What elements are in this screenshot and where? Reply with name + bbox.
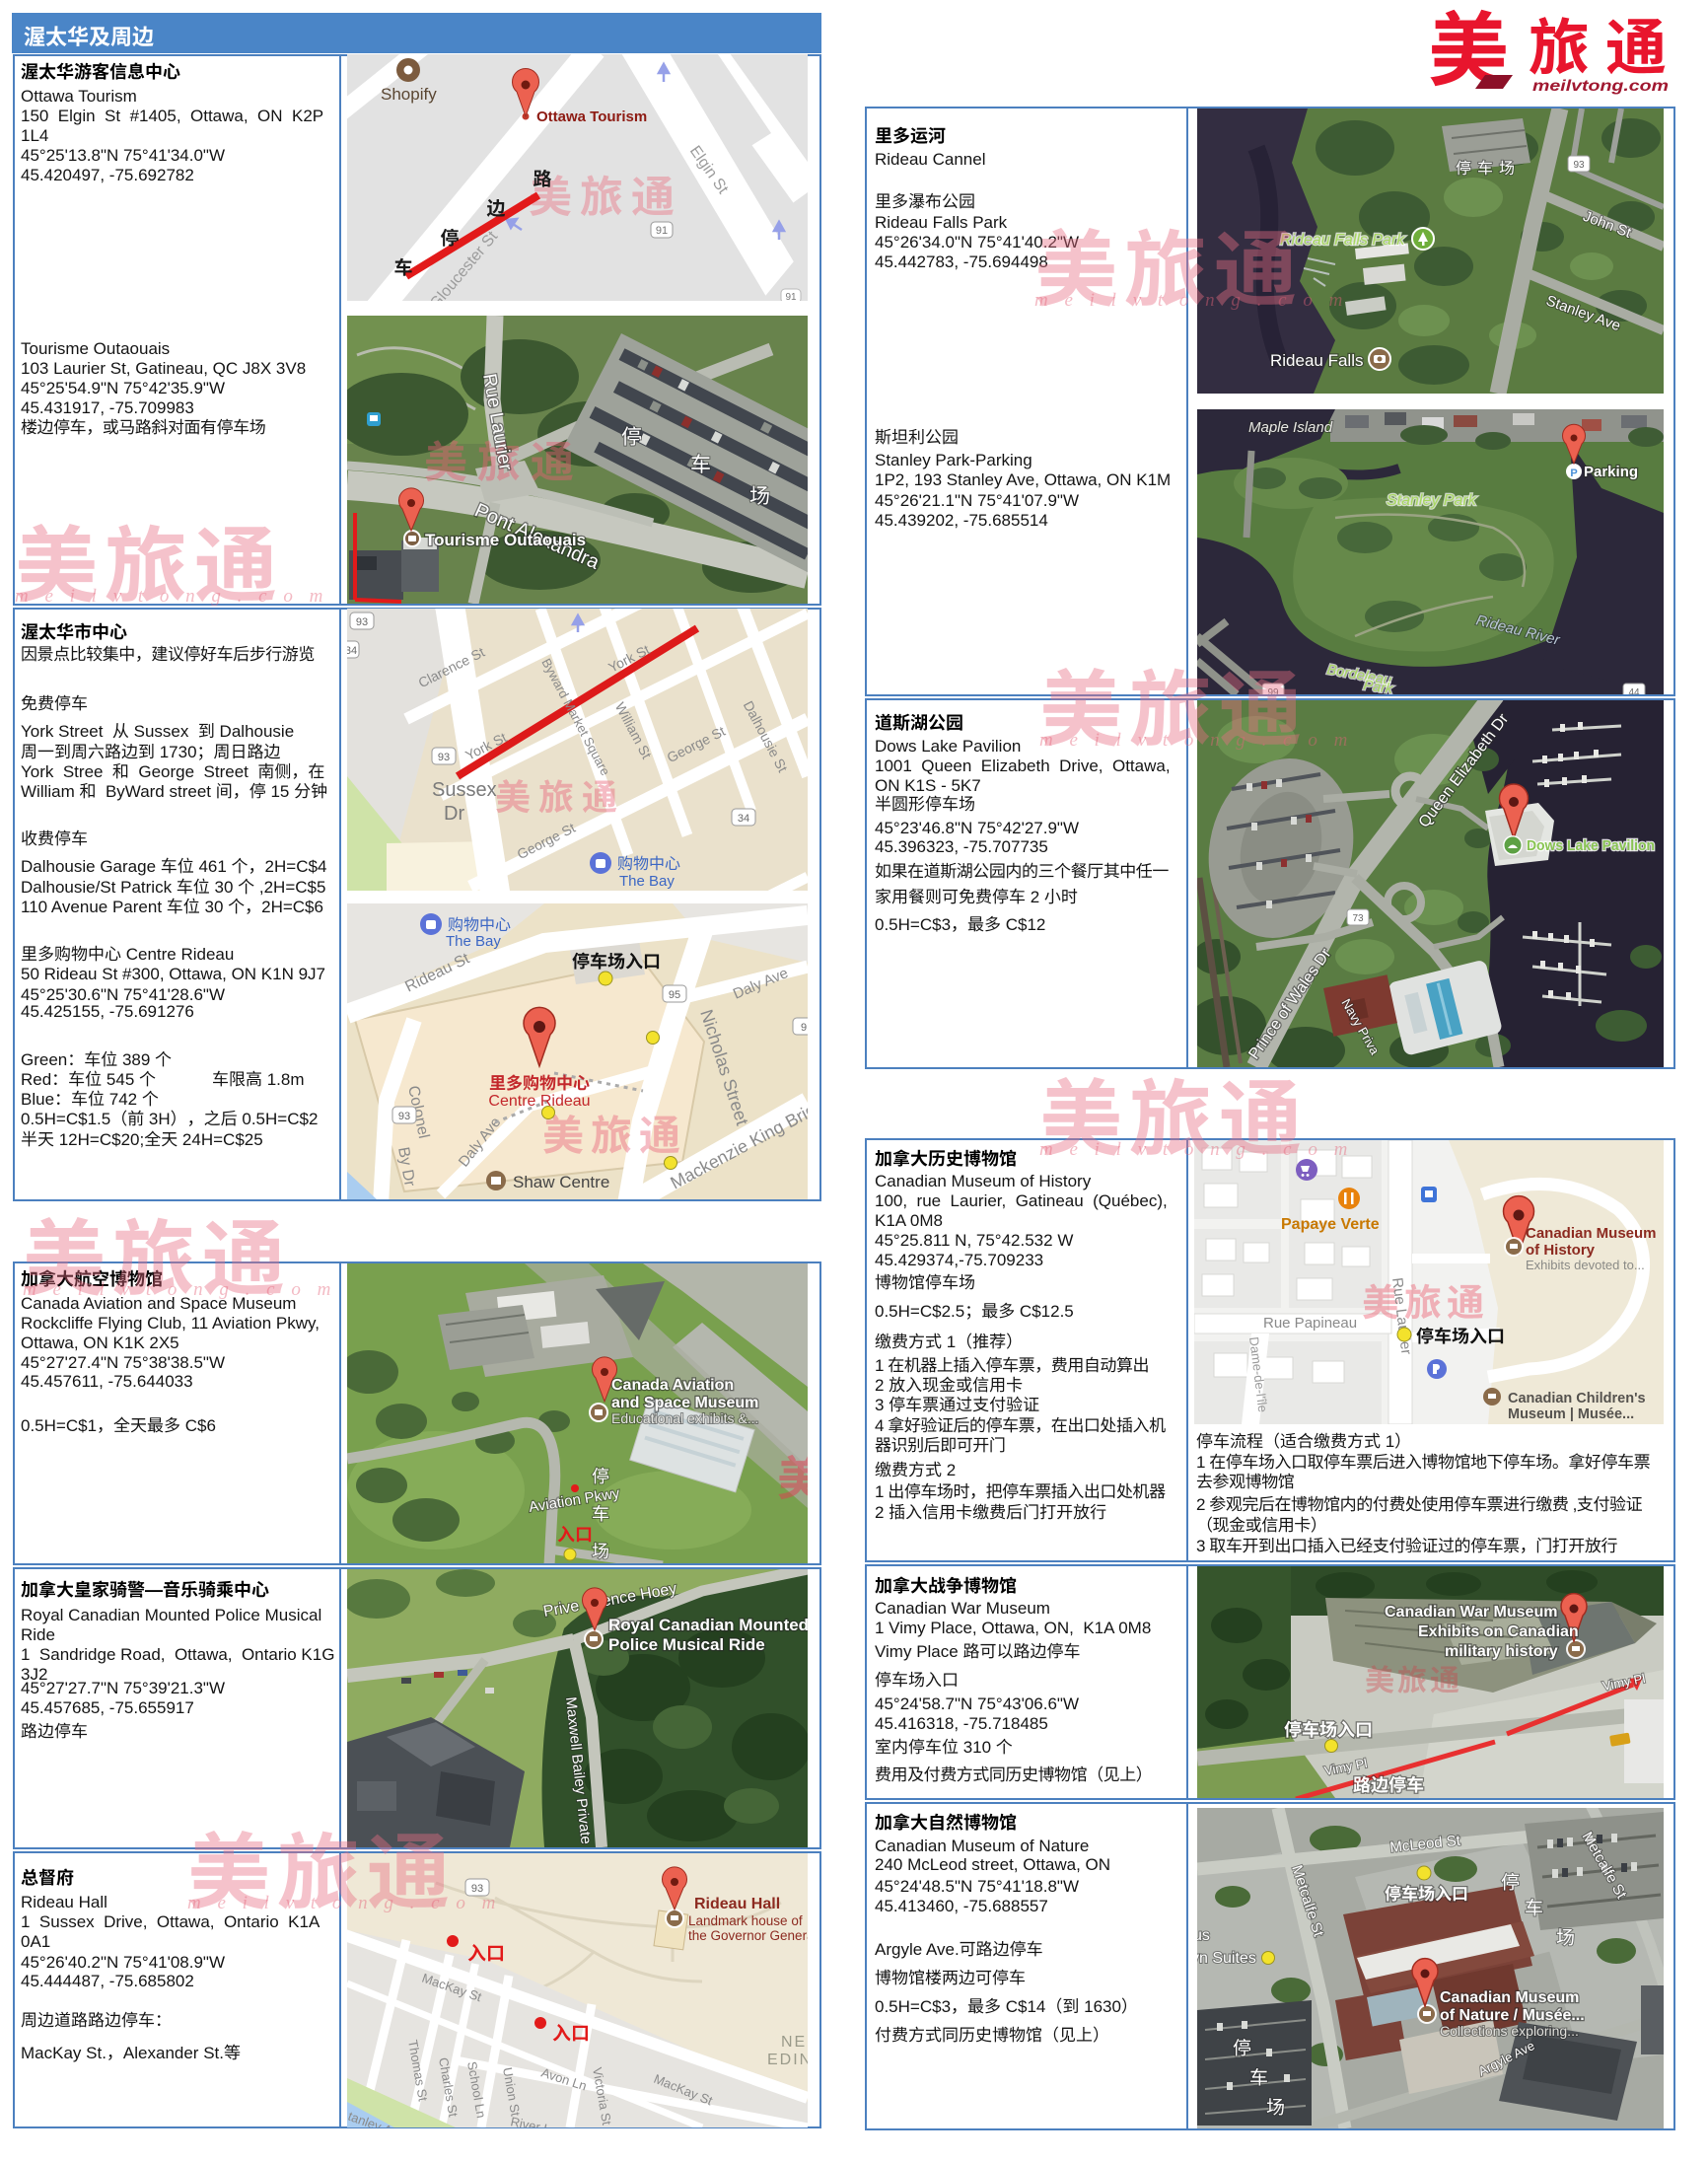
- svg-text:停: 停: [592, 1467, 609, 1486]
- svg-text:Museum | Musée...: Museum | Musée...: [1508, 1406, 1634, 1422]
- svg-text:场: 场: [1266, 2098, 1285, 2119]
- svg-text:of Nature / Musée...: of Nature / Musée...: [1440, 2007, 1585, 2024]
- svg-text:旅通: 旅通: [1529, 15, 1667, 83]
- svg-text:路边停车: 路边停车: [1353, 1775, 1424, 1795]
- svg-text:购物中心: 购物中心: [617, 855, 680, 873]
- svg-text:vn Suites: vn Suites: [1197, 1950, 1256, 1967]
- svg-text:Landmark house of: Landmark house of: [688, 1913, 803, 1928]
- svg-text:Canadian Children's: Canadian Children's: [1508, 1391, 1646, 1406]
- svg-text:93: 93: [398, 1111, 410, 1122]
- svg-text:车: 车: [393, 257, 412, 279]
- svg-text:美: 美: [777, 1454, 808, 1506]
- svg-text:Papaye Verte: Papaye Verte: [1281, 1216, 1380, 1233]
- svg-text:Canada Aviation: Canada Aviation: [611, 1377, 734, 1394]
- svg-text:场: 场: [749, 485, 770, 508]
- svg-text:停车场: 停车场: [1456, 160, 1521, 178]
- svg-text:91: 91: [656, 225, 668, 237]
- svg-text:Rideau Hall: Rideau Hall: [694, 1896, 780, 1912]
- svg-text:73: 73: [1352, 913, 1364, 924]
- svg-text:Parking: Parking: [1584, 464, 1638, 480]
- svg-text:Police Musical Ride: Police Musical Ride: [608, 1635, 765, 1654]
- svg-text:Collections exploring...: Collections exploring...: [1440, 2023, 1579, 2039]
- svg-text:34: 34: [738, 813, 749, 825]
- svg-text:Rideau Falls: Rideau Falls: [1270, 351, 1364, 370]
- svg-text:EDINB: EDINB: [767, 2052, 808, 2068]
- svg-text:停: 停: [440, 228, 459, 250]
- svg-text:P: P: [1570, 468, 1577, 479]
- svg-text:场: 场: [592, 1542, 609, 1561]
- svg-text:美旅通: 美旅通: [1362, 1283, 1489, 1325]
- svg-text:路: 路: [533, 169, 551, 190]
- svg-text:Sussex: Sussex: [432, 779, 497, 801]
- svg-text:Ottawa Tourism: Ottawa Tourism: [536, 108, 647, 125]
- svg-text:里多购物中心: 里多购物中心: [489, 1074, 590, 1093]
- svg-text:The Bay: The Bay: [619, 873, 675, 890]
- svg-text:Exhibits on Canadian: Exhibits on Canadian: [1418, 1623, 1579, 1640]
- svg-text:车: 车: [1525, 1898, 1543, 1919]
- svg-text:入口: 入口: [557, 1525, 593, 1545]
- svg-text:34: 34: [347, 645, 357, 657]
- svg-text:93: 93: [438, 752, 450, 763]
- svg-text:Maple Island: Maple Island: [1248, 419, 1333, 436]
- svg-text:Shopify: Shopify: [381, 85, 437, 104]
- svg-text:停: 停: [1233, 2038, 1251, 2059]
- svg-text:the Governor General: the Governor General: [688, 1928, 808, 1943]
- svg-text:车: 车: [690, 454, 711, 476]
- svg-text:车: 车: [592, 1504, 609, 1524]
- svg-text:停: 停: [621, 426, 642, 449]
- svg-text:Tourisme Outaouais: Tourisme Outaouais: [425, 531, 586, 549]
- svg-text:93: 93: [1573, 160, 1585, 171]
- svg-text:military history: military history: [1445, 1643, 1558, 1660]
- svg-text:99: 99: [1267, 687, 1279, 694]
- svg-text:93: 93: [471, 1883, 483, 1895]
- svg-text:of History: of History: [1526, 1242, 1596, 1259]
- svg-text:Dows Lake Pavilion: Dows Lake Pavilion: [1527, 837, 1655, 854]
- svg-text:and Space Museum: and Space Museum: [611, 1395, 758, 1411]
- svg-text:Stanley Park: Stanley Park: [1387, 492, 1477, 509]
- svg-text:9: 9: [801, 1022, 807, 1034]
- svg-text:车: 车: [1249, 2067, 1268, 2089]
- svg-text:边: 边: [486, 198, 505, 220]
- svg-text:美旅通: 美旅通: [495, 777, 625, 818]
- svg-text:停车场入口: 停车场入口: [572, 952, 661, 972]
- svg-text:停车场入口: 停车场入口: [1416, 1327, 1505, 1346]
- svg-text:93: 93: [356, 616, 368, 628]
- svg-text:Rue Papineau: Rue Papineau: [1263, 1315, 1357, 1332]
- svg-text:44: 44: [1628, 687, 1640, 694]
- svg-text:入口: 入口: [552, 2023, 590, 2045]
- svg-text:Exhibits devoted to...: Exhibits devoted to...: [1526, 1258, 1645, 1272]
- svg-text:95: 95: [669, 989, 680, 1001]
- svg-text:91: 91: [785, 292, 797, 301]
- svg-text:Rideau Falls Park: Rideau Falls Park: [1280, 232, 1405, 249]
- svg-text:Canadian Museum: Canadian Museum: [1526, 1225, 1657, 1242]
- svg-text:购物中心: 购物中心: [448, 916, 511, 934]
- svg-text:入口: 入口: [467, 1943, 505, 1965]
- svg-text:停: 停: [1501, 1872, 1520, 1894]
- svg-text:The Bay: The Bay: [446, 933, 501, 950]
- svg-text:Educational exhibits &...: Educational exhibits &...: [611, 1410, 758, 1426]
- svg-text:us: us: [1197, 1927, 1210, 1944]
- svg-text:Canadian Museum: Canadian Museum: [1440, 1989, 1579, 2006]
- svg-text:美旅通: 美旅通: [542, 1113, 687, 1159]
- svg-text:Centre Rideau: Centre Rideau: [488, 1093, 590, 1110]
- svg-text:停车场入口: 停车场入口: [1385, 1885, 1468, 1904]
- svg-text:Canadian War Museum: Canadian War Museum: [1385, 1604, 1557, 1621]
- svg-text:Dr: Dr: [444, 803, 464, 825]
- svg-text:Shaw Centre: Shaw Centre: [513, 1173, 609, 1191]
- svg-text:美旅通: 美旅通: [1365, 1665, 1462, 1697]
- svg-text:Royal Canadian Mounted: Royal Canadian Mounted: [608, 1616, 808, 1634]
- svg-text:停车场入口: 停车场入口: [1284, 1720, 1373, 1740]
- svg-text:NE: NE: [781, 2034, 807, 2051]
- svg-text:meilvtong.com: meilvtong.com: [1532, 78, 1669, 95]
- svg-text:场: 场: [1556, 1928, 1575, 1949]
